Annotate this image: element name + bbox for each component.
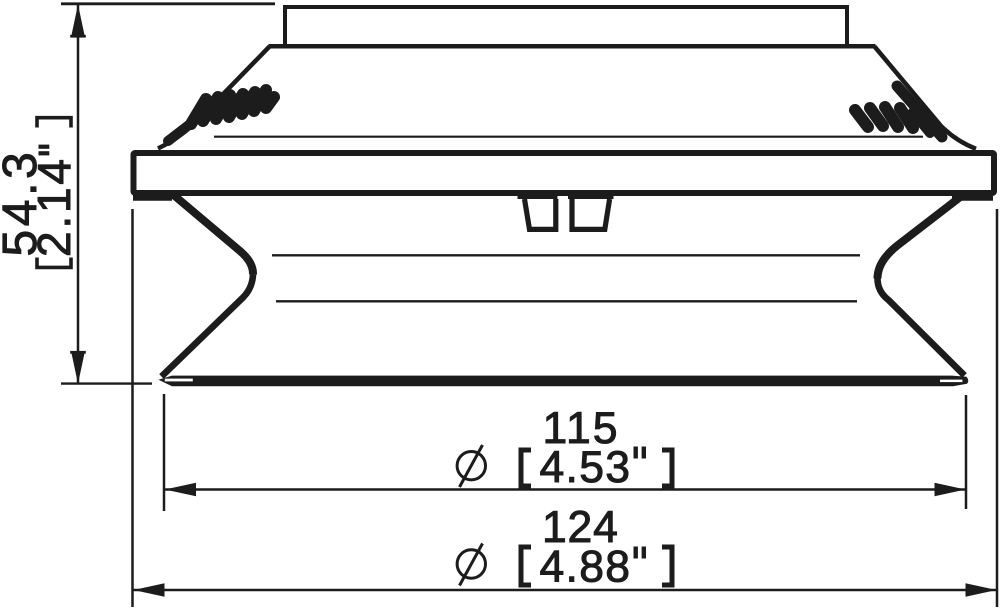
svg-text:2.14: 2.14 [28, 156, 80, 257]
svg-text:4.88: 4.88 [540, 543, 632, 592]
svg-text:4.53: 4.53 [540, 443, 632, 492]
